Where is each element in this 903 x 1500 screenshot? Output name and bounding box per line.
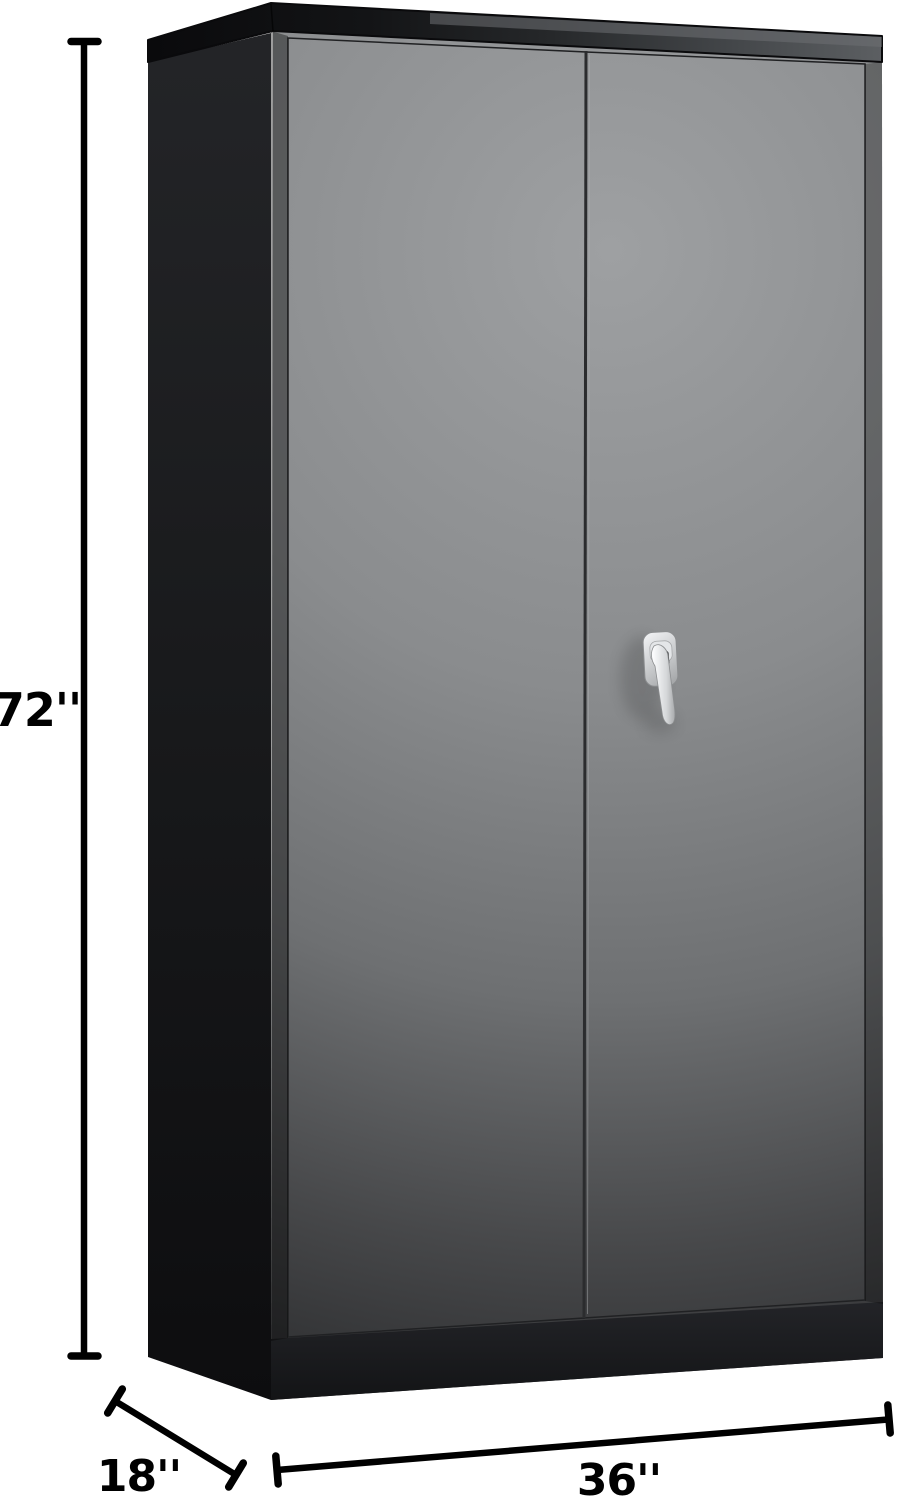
frame-right-post-shade [865, 62, 883, 1304]
cabinet-illustration [148, 3, 883, 1400]
cabinet-dimension-diagram: 72'' 18'' 36'' [0, 0, 903, 1500]
cabinet-left-door [288, 38, 586, 1337]
frame-left-post-shade [271, 31, 288, 1341]
cabinet-side-panel [148, 33, 271, 1400]
product-image: 72'' 18'' 36'' [0, 0, 903, 1500]
door-gap-line [584, 51, 586, 1318]
width-cap-right [888, 1405, 890, 1433]
height-dimension-label: 72'' [0, 683, 81, 737]
depth-dimension-label: 18'' [97, 1451, 181, 1500]
width-cap-left [276, 1456, 278, 1484]
width-dimension-label: 36'' [577, 1455, 661, 1500]
